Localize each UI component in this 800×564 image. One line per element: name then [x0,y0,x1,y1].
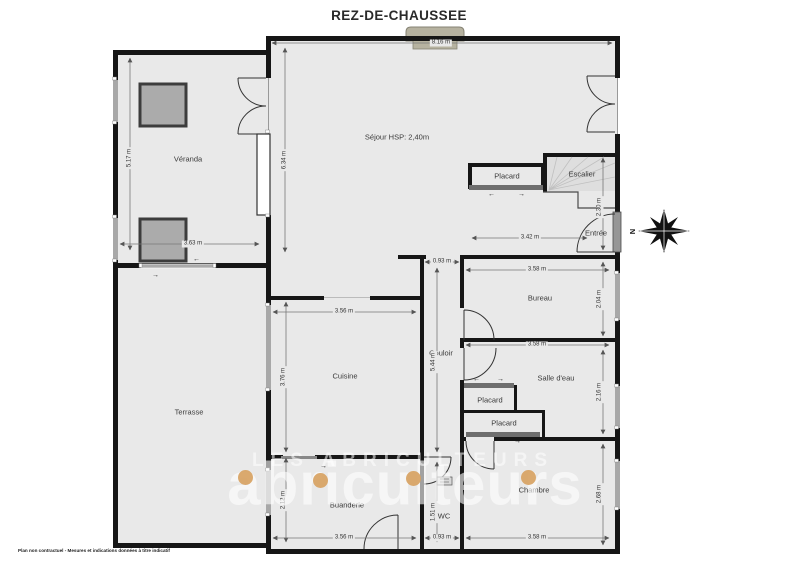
slide-arrow-left-icon: ← [473,376,480,383]
watermark-dot [521,470,536,485]
dim-label-escalier-height: 2.30 m [597,196,604,218]
room-label-terrasse: Terrasse [175,408,204,417]
dim-label-chambre-height: 2.68 m [597,483,604,505]
dim-label-salle-eau-width: 3.58 m [526,342,548,349]
room-label-cuisine: Cuisine [332,372,357,381]
floorplan-page: { "title": "REZ-DE-CHAUSSEE", "disclaime… [0,0,800,564]
disclaimer-text: Plan non contractuel - Mesures et indica… [18,548,170,553]
room-label-chambre: Chambre [519,486,550,495]
dim-label-veranda-height: 5.17 m [127,147,134,169]
dim-label-sejour-height: 6.34 m [282,149,289,171]
wc-fixture [437,477,452,485]
dim-label-bureau-height: 2.04 m [597,288,604,310]
slide-arrow-right-icon: → [320,463,327,470]
compass-north-label: N [628,229,637,234]
watermark-dot [406,471,421,486]
watermark-dot [313,473,328,488]
dim-label-chambre-width: 3.58 m [526,535,548,542]
dim-label-wc-height: 1.51 m [431,501,438,523]
slide-arrow-right-icon: → [514,438,521,445]
dim-label-wc-width: 0.93 m [431,535,453,542]
room-label-veranda: Véranda [174,155,202,164]
page-title: REZ-DE-CHAUSSEE [331,8,467,23]
room-label-placard-bas: Placard [491,419,516,428]
dim-label-couloir-width: 0.93 m [431,259,453,266]
room-label-salle-eau: Salle d'eau [538,374,575,383]
room-label-wc: WC [438,512,451,521]
slide-arrow-right-icon: → [152,272,159,279]
window-bay [257,134,270,215]
dim-label-veranda-width: 3.63 m [182,241,204,248]
slide-arrow-left-icon: ← [488,191,495,198]
slide-arrow-right-icon: → [497,376,504,383]
front-door-panel [613,212,621,252]
dim-label-couloir-height: 5.44 m [431,351,438,373]
dim-label-buanderie-width: 3.56 m [333,535,355,542]
dim-label-sejour-width: 8.16 m [430,40,452,47]
dim-label-cuisine-height: 3.76 m [281,366,288,388]
dim-label-salle-eau-height: 2.16 m [597,381,604,403]
room-label-buanderie: Buanderie [330,501,364,510]
slide-arrow-left-icon: ← [193,256,200,263]
room-label-escalier: Escalier [569,170,596,179]
room-label-placard-haut: Placard [477,396,502,405]
dim-label-bureau-width: 3.58 m [526,267,548,274]
watermark-dot [238,470,253,485]
dim-label-entree-width: 3.42 m [519,235,541,242]
dim-label-cuisine-width: 3.56 m [333,309,355,316]
compass-icon [638,209,690,253]
floorplan-drawing [0,0,800,564]
room-label-bureau: Bureau [528,294,552,303]
room-label-placard-sejour: Placard [494,172,519,181]
dim-label-buanderie-height: 2.12 m [281,489,288,511]
room-label-sejour: Séjour HSP: 2,40m [365,133,429,142]
room-label-entree: Entrée [585,229,607,238]
slide-arrow-right-icon: → [518,191,525,198]
